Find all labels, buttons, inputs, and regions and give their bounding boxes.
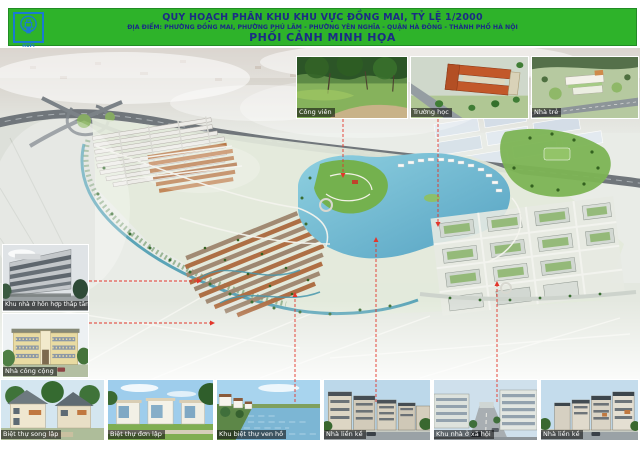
inset-label: Nhà liền kề	[324, 430, 366, 439]
inset-kindergarten: Nhà trẻ	[532, 57, 638, 118]
poster-subtitle-location: ĐỊA ĐIỂM: PHƯỜNG ĐỒNG MAI, PHƯỜNG PHÚ LÃ…	[9, 24, 636, 31]
inset-label: Biệt thự song lập	[1, 430, 61, 439]
inset-label: Khu biệt thự ven hồ	[217, 430, 286, 439]
hupi-emblem-icon	[15, 14, 42, 41]
inset-label: Khu nhà ở xã hội	[434, 430, 494, 439]
inset-label: Biệt thự đơn lập	[108, 430, 165, 439]
inset-label: Công viên	[297, 108, 335, 117]
inset-label: Khu nhà ở hỗn hợp thấp tầng	[3, 301, 88, 310]
inset-detached-villa: Biệt thự đơn lập	[108, 380, 213, 440]
inset-lakeside-villa: Khu biệt thự ven hồ	[217, 380, 320, 440]
inset-label: Trường học	[411, 108, 452, 117]
hupi-logo: HUPI	[13, 12, 44, 43]
inset-label: Nhà trẻ	[532, 108, 561, 117]
inset-semi-detached-villa: Biệt thự song lập	[1, 380, 104, 440]
inset-public-building: Nhà công cộng	[3, 314, 88, 377]
logo-text: HUPI	[15, 45, 42, 49]
inset-mixed-lowrise: Khu nhà ở hỗn hợp thấp tầng	[3, 245, 88, 311]
inset-townhouse-row-1: Nhà liền kề	[324, 380, 430, 440]
inset-school: Trường học	[411, 57, 528, 118]
inset-label: Nhà liền kề	[541, 430, 583, 439]
inset-townhouse-row-2: Nhà liền kề	[541, 380, 638, 440]
inset-label: Nhà công cộng	[3, 367, 57, 376]
inset-park: Công viên	[297, 57, 407, 118]
title-block: HUPI QUY HOẠCH PHÂN KHU KHU VỰC ĐỒNG MAI…	[8, 8, 637, 46]
inset-social-housing: Khu nhà ở xã hội	[434, 380, 537, 440]
poster-title: QUY HOẠCH PHÂN KHU KHU VỰC ĐỒNG MAI, TỶ …	[9, 12, 636, 23]
planning-poster: HUPI QUY HOẠCH PHÂN KHU KHU VỰC ĐỒNG MAI…	[0, 0, 640, 453]
poster-section-title: PHỐI CẢNH MINH HỌA	[9, 31, 636, 44]
